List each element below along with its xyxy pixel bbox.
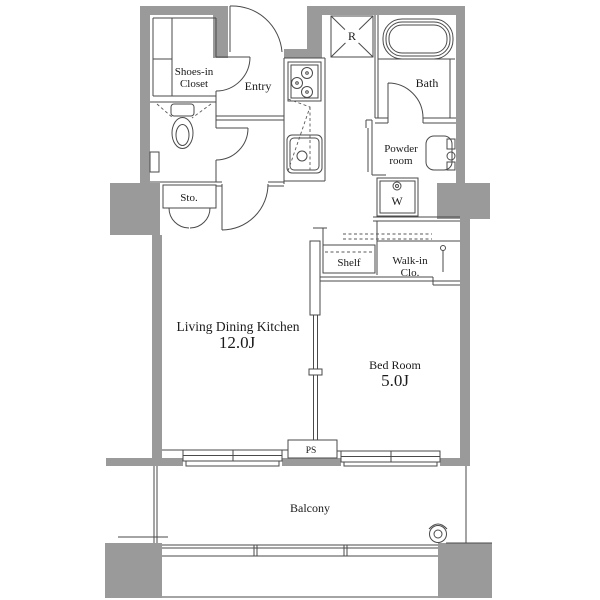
wall-bottom-right [440,458,470,466]
storage-double-doors [169,208,210,228]
drain-icon [429,524,447,543]
bedroom-top-wall [318,277,460,285]
sink-icon [287,135,322,173]
balcony-edge-right [446,466,492,543]
column-left [110,183,160,235]
refrigerator-label: R [348,29,356,43]
storage-label: Sto. [180,192,198,204]
shelf-label: Shelf [337,257,361,269]
bulkhead-dashed [343,234,432,239]
pipe-space-label: PS [306,446,317,456]
bathtub-icon [383,19,453,59]
ldk-label: Living Dining Kitchen [177,319,300,334]
wall-left-upper [140,6,150,183]
wall-bottom-left [106,458,183,466]
entry-label: Entry [245,79,272,93]
washer-label: W [391,194,403,208]
ldk-size-label: 12.0J [219,333,256,352]
wall-top-right [322,6,465,15]
toilet-door-swing [216,128,248,160]
powder-room-label-2: room [389,155,413,167]
column-right [437,183,490,219]
wall-entry-recess [284,49,307,58]
bedroom-size-label: 5.0J [381,371,409,390]
sliding-door-catch [309,369,322,375]
wall-entry-left-jamb [213,6,228,58]
stove-icon [288,62,321,101]
toilet-icon [150,104,194,172]
bedroom-window [341,451,440,466]
bedroom-label: Bed Room [369,358,421,372]
wall-right-lower [460,219,470,462]
powder-room-label-1: Powder [384,143,418,155]
wall-top-left [140,6,222,15]
balcony-label: Balcony [290,501,330,515]
ldk-window [183,450,282,466]
balcony-details [118,466,492,597]
wall-bottom-center [282,458,341,466]
balcony-partition-left [118,466,168,543]
bath-label: Bath [416,76,439,90]
toilet-room-walls [150,102,216,182]
ldk-door-swing [222,184,268,230]
shoes-closet-label-1: Shoes-in [175,66,214,78]
wall-left-lower [152,235,162,462]
entry-door-swing [230,6,282,52]
hanger-rod-icon [441,246,446,273]
balcony-column-right [438,543,492,598]
shoes-closet-label-2: Closet [180,78,208,90]
balcony-column-left [105,543,162,598]
wall-right-upper [456,6,465,183]
vanity-icon [426,136,455,170]
floor-plan-page: Shoes-in Closet Entry R Bath Powder room… [0,0,600,600]
hall-walls [216,58,284,186]
wall-entry-right-jamb [307,6,322,58]
balcony-railing [162,545,438,556]
sliding-door-panel [310,241,320,315]
walkin-label-1: Walk-in [392,255,428,267]
floor-plan-svg: Shoes-in Closet Entry R Bath Powder room… [0,0,600,600]
walkin-label-2: Clo. [401,267,420,279]
